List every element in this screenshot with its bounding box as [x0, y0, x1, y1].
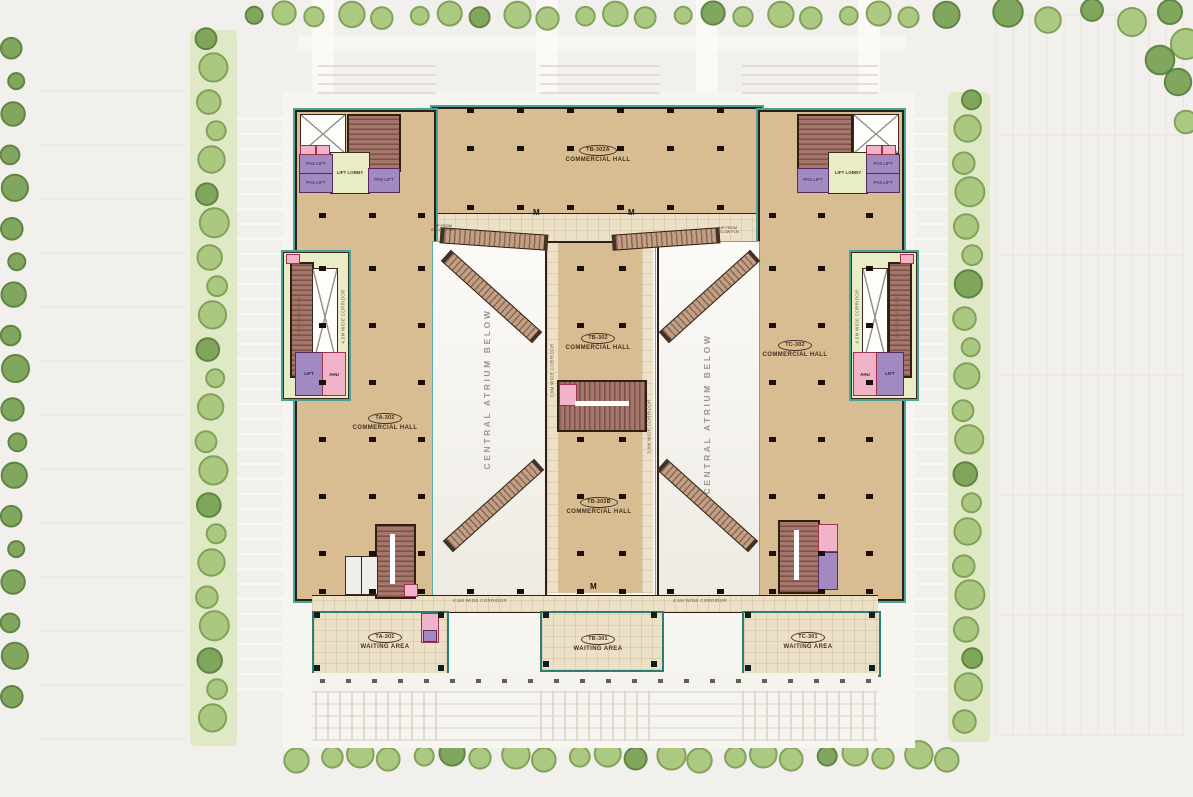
- up-note: UP FROM BELOW FLR.: [431, 224, 455, 233]
- corner-column: [314, 612, 320, 618]
- corridor-label-bottom-left: 4.5M WIDE CORRIDOR: [430, 598, 530, 603]
- column: [418, 213, 425, 218]
- waiting-label-left: TA-301 WAITING AREA: [347, 625, 423, 650]
- lift-room: LIFT: [295, 352, 323, 396]
- colonnade-column: [684, 679, 689, 683]
- column: [319, 437, 326, 442]
- lift-room: [818, 552, 838, 590]
- colonnade-column: [476, 679, 481, 683]
- colonnade-column: [346, 679, 351, 683]
- colonnade-column: [554, 679, 559, 683]
- column: [769, 266, 776, 271]
- entry-steps-left: [315, 691, 445, 741]
- passenger-lift: PAS LIFT: [866, 173, 900, 193]
- toilet-room: [866, 145, 882, 155]
- column: [467, 589, 474, 594]
- colonnade-column: [710, 679, 715, 683]
- column: [369, 213, 376, 218]
- ahu-room: AHU: [853, 352, 877, 396]
- column: [577, 266, 584, 271]
- passenger-lift: PAS LIFT: [368, 168, 400, 193]
- column: [866, 213, 873, 218]
- column: [667, 108, 674, 113]
- column: [418, 437, 425, 442]
- lift-room: [345, 556, 362, 595]
- canopy-center: [540, 60, 660, 94]
- column: [418, 589, 425, 594]
- corner-column: [651, 661, 657, 667]
- corner-column: [438, 665, 444, 671]
- colonnade-column: [788, 679, 793, 683]
- column: [717, 205, 724, 210]
- colonnade-column: [606, 679, 611, 683]
- colonnade-column: [450, 679, 455, 683]
- entry-steps-right: [742, 691, 878, 741]
- column: [319, 380, 326, 385]
- toilet-room: [818, 524, 838, 552]
- entry-steps-center: [540, 691, 660, 741]
- column: [369, 551, 376, 556]
- column: [418, 551, 425, 556]
- passenger-lift: PAS LIFT: [299, 173, 333, 193]
- column: [818, 494, 825, 499]
- hall-label-center: TB-302 COMMERCIAL HALL: [560, 326, 636, 351]
- column: [717, 589, 724, 594]
- colonnade-column: [762, 679, 767, 683]
- canopy-left: [318, 60, 436, 94]
- colonnade-column: [840, 679, 845, 683]
- column: [769, 213, 776, 218]
- column: [717, 146, 724, 151]
- colonnade-column: [424, 679, 429, 683]
- column: [319, 589, 326, 594]
- corner-column: [543, 612, 549, 618]
- toilet-room: [286, 254, 300, 264]
- colonnade-column: [814, 679, 819, 683]
- toilet-room: [316, 145, 330, 155]
- column: [319, 323, 326, 328]
- column: [418, 266, 425, 271]
- column: [769, 589, 776, 594]
- hall-label-top: TB-302A COMMERCIAL HALL: [560, 138, 636, 163]
- column: [567, 205, 574, 210]
- colonnade-column: [866, 679, 871, 683]
- column: [619, 589, 626, 594]
- column: [577, 589, 584, 594]
- waiting-label-center: TB-301 WAITING AREA: [560, 627, 636, 652]
- stair-handrail: [575, 401, 629, 406]
- colonnade-column: [398, 679, 403, 683]
- toilet-room: [300, 145, 316, 155]
- colonnade-column: [320, 679, 325, 683]
- colonnade-column: [632, 679, 637, 683]
- column: [517, 146, 524, 151]
- escalator-marker: M: [590, 582, 597, 591]
- column: [619, 551, 626, 556]
- canopy-right: [742, 60, 878, 94]
- corner-column: [869, 665, 875, 671]
- column: [818, 380, 825, 385]
- corridor-label-spine-right: 3.0M WIDE CORRIDOR: [647, 396, 652, 458]
- column: [619, 437, 626, 442]
- column: [717, 108, 724, 113]
- column: [517, 589, 524, 594]
- column: [818, 213, 825, 218]
- column: [517, 205, 524, 210]
- ahu-room: AHU: [322, 352, 346, 396]
- column: [467, 205, 474, 210]
- column: [319, 266, 326, 271]
- column: [667, 205, 674, 210]
- column: [667, 589, 674, 594]
- atrium-label-right: CENTRAL ATRIUM BELOW: [702, 329, 712, 499]
- toilet-room: [900, 254, 914, 264]
- corner-column: [869, 612, 875, 618]
- staircase-bottom-right: [778, 520, 820, 594]
- column: [619, 266, 626, 271]
- building-plan: LIFT LOBBY PAS LIFT PAS LIFT PAS LIFT LI…: [0, 0, 1193, 797]
- hall-label-right: TC-302 COMMERCIAL HALL: [757, 333, 833, 358]
- colonnade-column: [372, 679, 377, 683]
- column: [769, 380, 776, 385]
- column: [319, 551, 326, 556]
- corner-column: [745, 612, 751, 618]
- column: [866, 323, 873, 328]
- column: [467, 146, 474, 151]
- corridor-label-spine-left: 3.0M WIDE CORRIDOR: [550, 340, 555, 402]
- escalator-marker: M: [533, 208, 540, 217]
- column: [418, 323, 425, 328]
- escalator-marker: M: [628, 208, 635, 217]
- column: [866, 494, 873, 499]
- corner-column: [314, 665, 320, 671]
- waiting-label-right: TC-301 WAITING AREA: [770, 625, 846, 650]
- column: [319, 494, 326, 499]
- kiosk-lift: [423, 630, 437, 642]
- site-plan: LIFT LOBBY PAS LIFT PAS LIFT PAS LIFT LI…: [0, 0, 1193, 797]
- column: [818, 589, 825, 594]
- column: [369, 589, 376, 594]
- column: [517, 108, 524, 113]
- column: [577, 437, 584, 442]
- lift-lobby-left: LIFT LOBBY: [330, 152, 370, 194]
- column: [818, 437, 825, 442]
- corridor-label-right-edge: 4.5M WIDE CORRIDOR: [855, 286, 860, 348]
- column: [577, 551, 584, 556]
- column: [369, 266, 376, 271]
- column: [866, 437, 873, 442]
- lift-lobby-right: LIFT LOBBY: [828, 152, 868, 194]
- colonnade-column: [580, 679, 585, 683]
- corner-column: [543, 661, 549, 667]
- atrium-label-left: CENTRAL ATRIUM BELOW: [482, 304, 492, 474]
- column: [617, 205, 624, 210]
- column: [866, 551, 873, 556]
- colonnade-column: [502, 679, 507, 683]
- column: [467, 108, 474, 113]
- column: [866, 266, 873, 271]
- passenger-lift: PAS LIFT: [299, 154, 333, 174]
- up-note: UP FROM BELOW FLR.: [716, 226, 740, 235]
- corridor-label-left-edge: 4.5M WIDE CORRIDOR: [341, 286, 346, 348]
- column: [369, 323, 376, 328]
- corridor-label-bottom-right: 4.5M WIDE CORRIDOR: [650, 598, 750, 603]
- fire-stair-label-left: FIRE STAIRCASE: [297, 288, 302, 346]
- column: [667, 146, 674, 151]
- column: [369, 437, 376, 442]
- column: [818, 266, 825, 271]
- toilet-room: [882, 145, 896, 155]
- column: [617, 108, 624, 113]
- colonnade-column: [736, 679, 741, 683]
- corner-column: [438, 612, 444, 618]
- column: [369, 494, 376, 499]
- passenger-lift: PAS LIFT: [866, 154, 900, 174]
- column: [418, 494, 425, 499]
- column: [818, 323, 825, 328]
- colonnade-column: [528, 679, 533, 683]
- column: [769, 494, 776, 499]
- fire-stair-label-right: FIRE STAIRCASE: [895, 288, 900, 346]
- colonnade: [312, 673, 878, 691]
- column: [369, 380, 376, 385]
- toilet-room: [404, 584, 418, 597]
- passenger-lift: PAS LIFT: [797, 168, 829, 193]
- column: [866, 589, 873, 594]
- corner-column: [745, 665, 751, 671]
- hall-label-center-south: TB-302B COMMERCIAL HALL: [556, 490, 642, 515]
- column: [769, 323, 776, 328]
- colonnade-column: [658, 679, 663, 683]
- corner-column: [651, 612, 657, 618]
- column: [818, 551, 825, 556]
- stair-handrail: [794, 530, 799, 580]
- column: [418, 380, 425, 385]
- column: [567, 108, 574, 113]
- hall-label-left: TA-302 COMMERCIAL HALL: [347, 406, 423, 431]
- column: [866, 380, 873, 385]
- column: [769, 551, 776, 556]
- stair-handrail: [390, 534, 395, 584]
- column: [319, 213, 326, 218]
- column: [769, 437, 776, 442]
- lift-room: LIFT: [876, 352, 904, 396]
